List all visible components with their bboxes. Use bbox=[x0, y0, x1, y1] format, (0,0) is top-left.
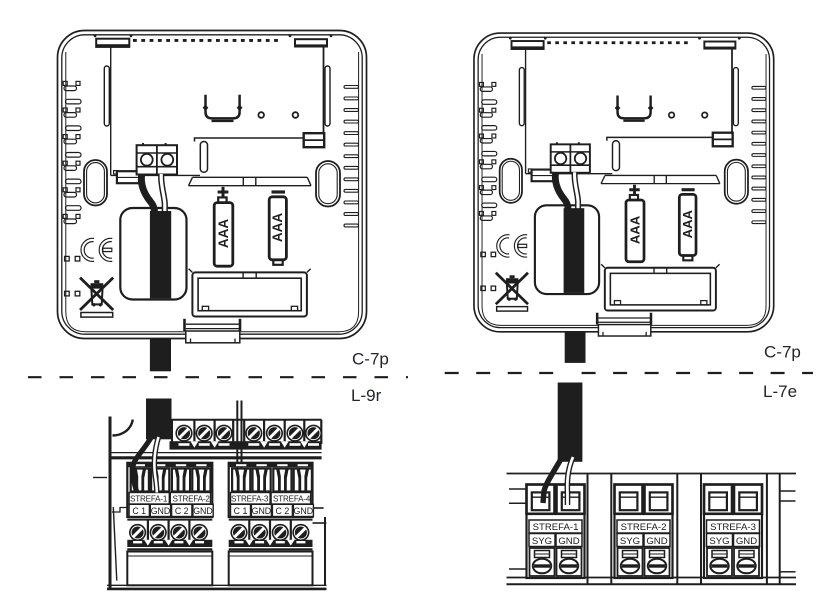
svg-text:SYG: SYG bbox=[709, 536, 729, 547]
svg-text:GND: GND bbox=[151, 506, 171, 516]
svg-text:C 2: C 2 bbox=[276, 506, 290, 516]
svg-text:AAA: AAA bbox=[216, 219, 231, 248]
svg-text:GND: GND bbox=[294, 506, 314, 516]
svg-text:STREFA-3: STREFA-3 bbox=[710, 522, 756, 533]
svg-text:L-7e: L-7e bbox=[763, 382, 797, 401]
svg-text:C 1: C 1 bbox=[234, 506, 248, 516]
svg-text:SYG: SYG bbox=[620, 536, 640, 547]
svg-text:C-7p: C-7p bbox=[352, 350, 389, 369]
svg-text:L-9r: L-9r bbox=[351, 386, 382, 405]
svg-text:GND: GND bbox=[193, 506, 213, 516]
svg-text:SYG: SYG bbox=[532, 536, 552, 547]
svg-text:STREFA-3: STREFA-3 bbox=[231, 495, 269, 504]
svg-text:AAA: AAA bbox=[270, 213, 285, 242]
svg-text:GND: GND bbox=[646, 536, 667, 547]
svg-text:C 1: C 1 bbox=[132, 506, 146, 516]
svg-text:GND: GND bbox=[558, 536, 579, 547]
svg-text:STREFA-1: STREFA-1 bbox=[130, 495, 168, 504]
svg-text:C-7p: C-7p bbox=[764, 343, 801, 362]
svg-text:STREFA-2: STREFA-2 bbox=[173, 495, 211, 504]
svg-text:STREFA-1: STREFA-1 bbox=[533, 522, 579, 533]
svg-text:STREFA-4: STREFA-4 bbox=[273, 495, 311, 504]
svg-text:STREFA-2: STREFA-2 bbox=[621, 522, 667, 533]
svg-text:GND: GND bbox=[252, 506, 272, 516]
svg-text:GND: GND bbox=[736, 536, 757, 547]
svg-text:C 2: C 2 bbox=[175, 506, 189, 516]
